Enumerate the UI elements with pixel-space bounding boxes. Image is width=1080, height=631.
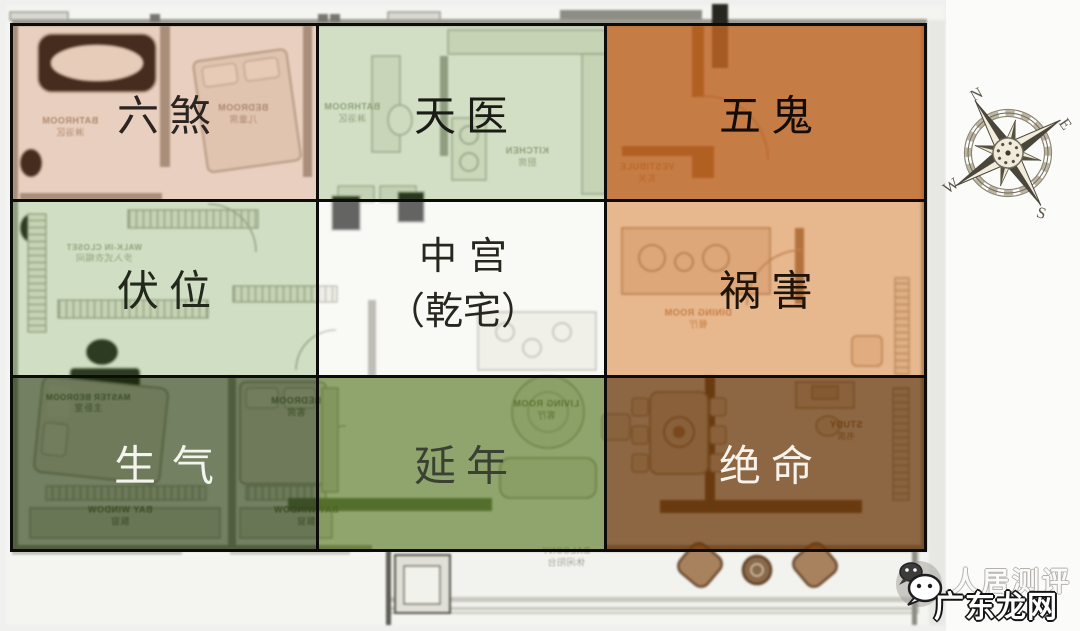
label-sheng-qi: 生气 (98, 433, 230, 494)
label-jue-ming: 绝命 (709, 433, 823, 494)
compass-south-label: S (1034, 204, 1048, 223)
grid-line-vertical-1 (316, 23, 319, 552)
grid-line-vertical-2 (604, 23, 607, 552)
fengshui-floorplan-diagram: BATHROOM淋浴区 BEDROOM儿童房 BATHROOM淋浴区 KITCH… (0, 0, 1080, 631)
compass-west-label: W (940, 175, 963, 198)
label-liu-sha: 六煞 (107, 83, 221, 144)
grid-line-horizontal-2 (10, 375, 927, 378)
label-zhong-gong-line1: 中宫 (387, 230, 539, 285)
grid-line-horizontal-1 (10, 199, 927, 202)
label-tian-yi: 天医 (404, 83, 518, 144)
label-huo-hai: 祸害 (709, 258, 823, 319)
compass-north-label: N (968, 84, 987, 105)
label-zhong-gong-line2: （乾宅） (387, 285, 539, 340)
compass-east-label: E (1055, 116, 1075, 134)
label-yan-nian: 延年 (404, 433, 518, 494)
compass-rose: N E W S (930, 60, 1080, 240)
label-fu-wei: 伏位 (107, 258, 221, 319)
label-zhong-gong: 中宫 （乾宅） (387, 230, 539, 340)
watermark-guangdong-longwang: 广东龙网 (934, 582, 1058, 626)
label-wu-gui: 五鬼 (709, 83, 823, 144)
